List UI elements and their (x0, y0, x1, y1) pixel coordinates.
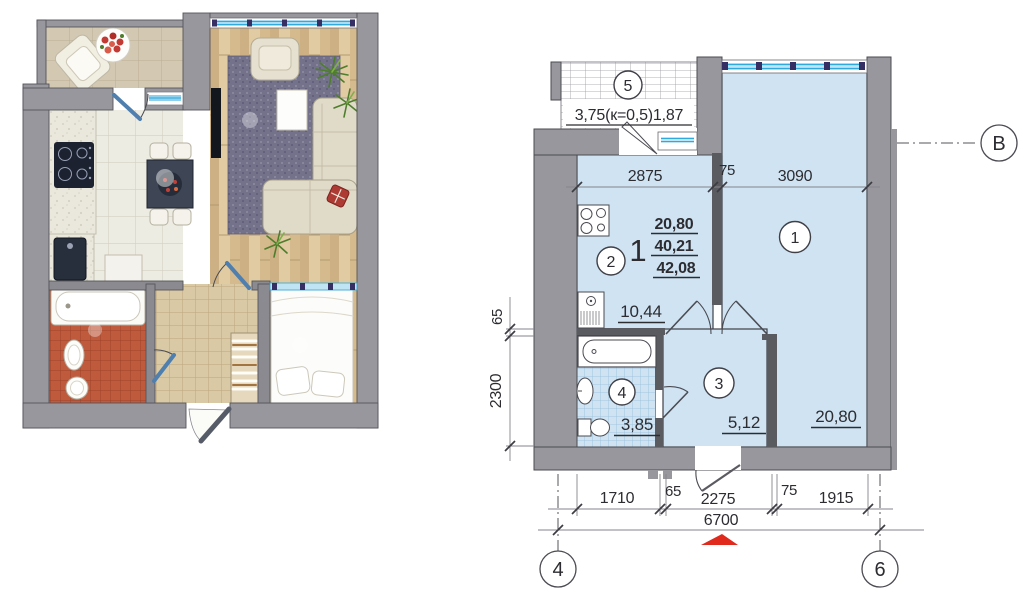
unit-number: 1 (629, 233, 646, 268)
unit-living-area: 20,80 (654, 216, 693, 233)
room-5-number: 5 (624, 78, 633, 95)
flower-plate (96, 28, 130, 62)
kitchen-area: 10,44 (620, 302, 662, 321)
bidet (66, 377, 88, 399)
dim-bottom-1710: 1710 (600, 490, 635, 507)
washbasin-icon (577, 378, 593, 404)
living-window (210, 18, 357, 28)
technical-floor-plan: 1 2 3 4 5 10,44 5,12 20,80 3,85 3,75(к=0… (488, 57, 1017, 587)
dim-top-living: 3090 (778, 168, 813, 185)
bathtub (51, 288, 145, 325)
room-3-number: 3 (715, 376, 724, 393)
dim-total-6700: 6700 (704, 512, 739, 529)
axis-6: 6 (874, 559, 885, 581)
dim-bottom-75: 75 (781, 482, 797, 499)
balcony-area: 3,75(к=0,5)1,87 (575, 107, 684, 124)
dim-bottom-1915: 1915 (819, 490, 854, 507)
wardrobe (231, 333, 258, 403)
dim-left-2300: 2300 (488, 373, 505, 408)
dim-top-partition: 75 (719, 162, 735, 179)
living-window-plan (722, 60, 867, 73)
toilet-icon (578, 419, 610, 436)
rendered-floor-plan (23, 13, 378, 441)
bed (271, 290, 353, 403)
room-4-number: 4 (618, 385, 627, 402)
dim-bottom-65: 65 (665, 483, 681, 500)
floor-plan-drawing: 1 2 3 4 5 10,44 5,12 20,80 3,85 3,75(к=0… (0, 0, 1024, 594)
sink-icon (578, 292, 604, 328)
room-2-number: 2 (607, 254, 616, 271)
dim-bottom-2275: 2275 (701, 491, 736, 508)
balcony-window (147, 92, 183, 105)
kitchen-window-plan (658, 132, 697, 150)
tv (211, 88, 221, 158)
bath-area: 3,85 (621, 415, 653, 434)
axis-B: В (992, 133, 1005, 155)
coffee-table (277, 90, 307, 130)
bed-glass-screen (270, 283, 357, 290)
bathtub-icon (578, 336, 656, 367)
living-area: 20,80 (815, 407, 857, 426)
dim-top-kitchen: 2875 (628, 168, 663, 185)
stove-icon (578, 205, 609, 236)
unit-total-area: 42,08 (656, 260, 695, 277)
bath-sink (64, 340, 84, 370)
hall-area: 5,12 (728, 413, 760, 432)
kitchen-sink (49, 234, 94, 284)
cooktop-icon (54, 142, 94, 188)
dim-left-65: 65 (489, 309, 506, 325)
axis-4: 4 (552, 559, 563, 581)
room-1-number: 1 (791, 230, 800, 247)
entrance-opening (695, 446, 741, 470)
entrance-marker-icon (701, 534, 738, 545)
armchair (251, 38, 299, 80)
floor-plan-page: 1 2 3 4 5 10,44 5,12 20,80 3,85 3,75(к=0… (0, 0, 1024, 594)
unit-apartment-area: 40,21 (654, 238, 693, 255)
